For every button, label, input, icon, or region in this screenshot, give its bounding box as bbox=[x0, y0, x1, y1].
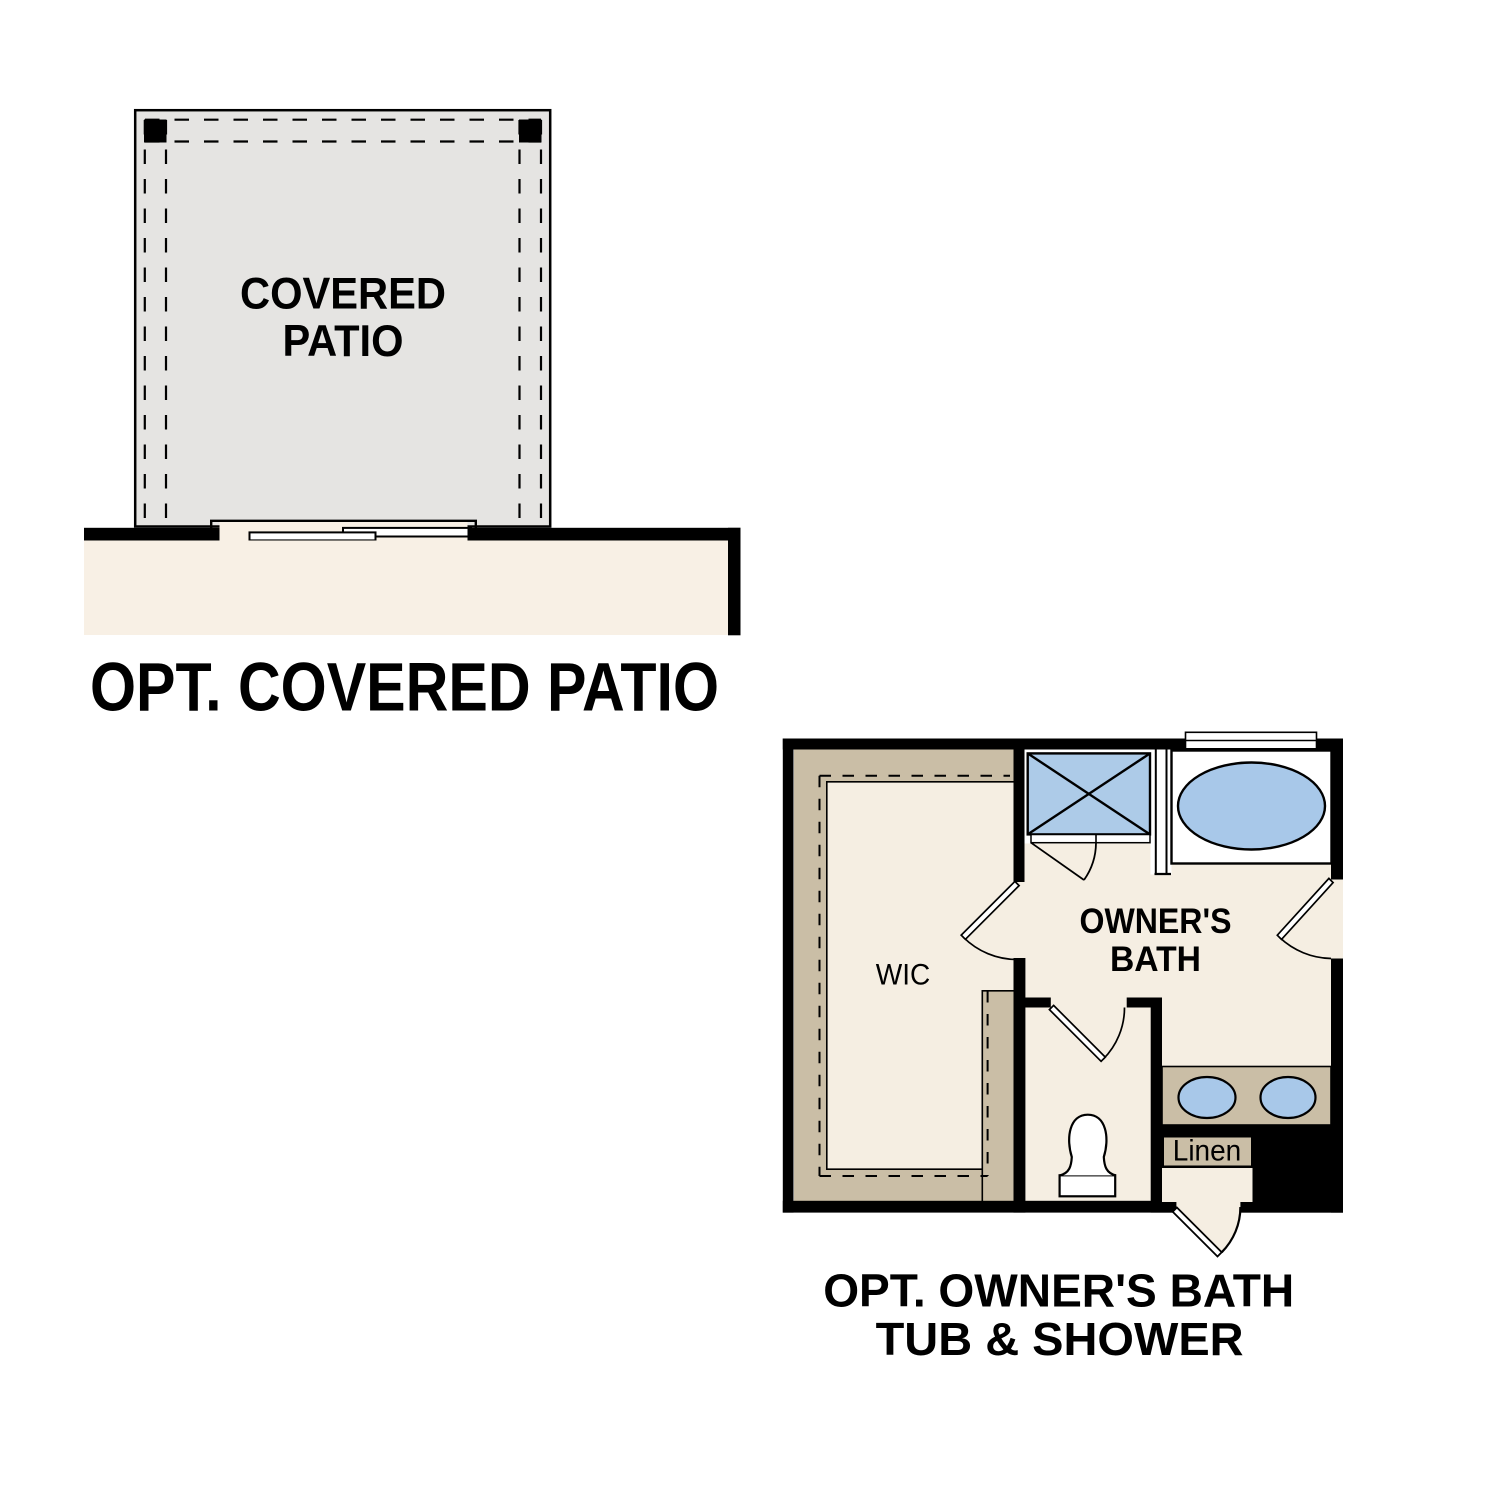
svg-text:COVERED: COVERED bbox=[240, 269, 446, 318]
svg-text:OPT. COVERED PATIO: OPT. COVERED PATIO bbox=[90, 649, 719, 725]
svg-text:WIC: WIC bbox=[876, 958, 931, 991]
svg-text:TUB & SHOWER: TUB & SHOWER bbox=[876, 1313, 1244, 1365]
svg-text:PATIO: PATIO bbox=[283, 317, 404, 366]
svg-text:OPT. OWNER'S BATH: OPT. OWNER'S BATH bbox=[823, 1265, 1294, 1317]
svg-text:OWNER'S: OWNER'S bbox=[1080, 901, 1232, 941]
svg-text:Linen: Linen bbox=[1173, 1135, 1242, 1168]
svg-text:BATH: BATH bbox=[1110, 939, 1201, 979]
